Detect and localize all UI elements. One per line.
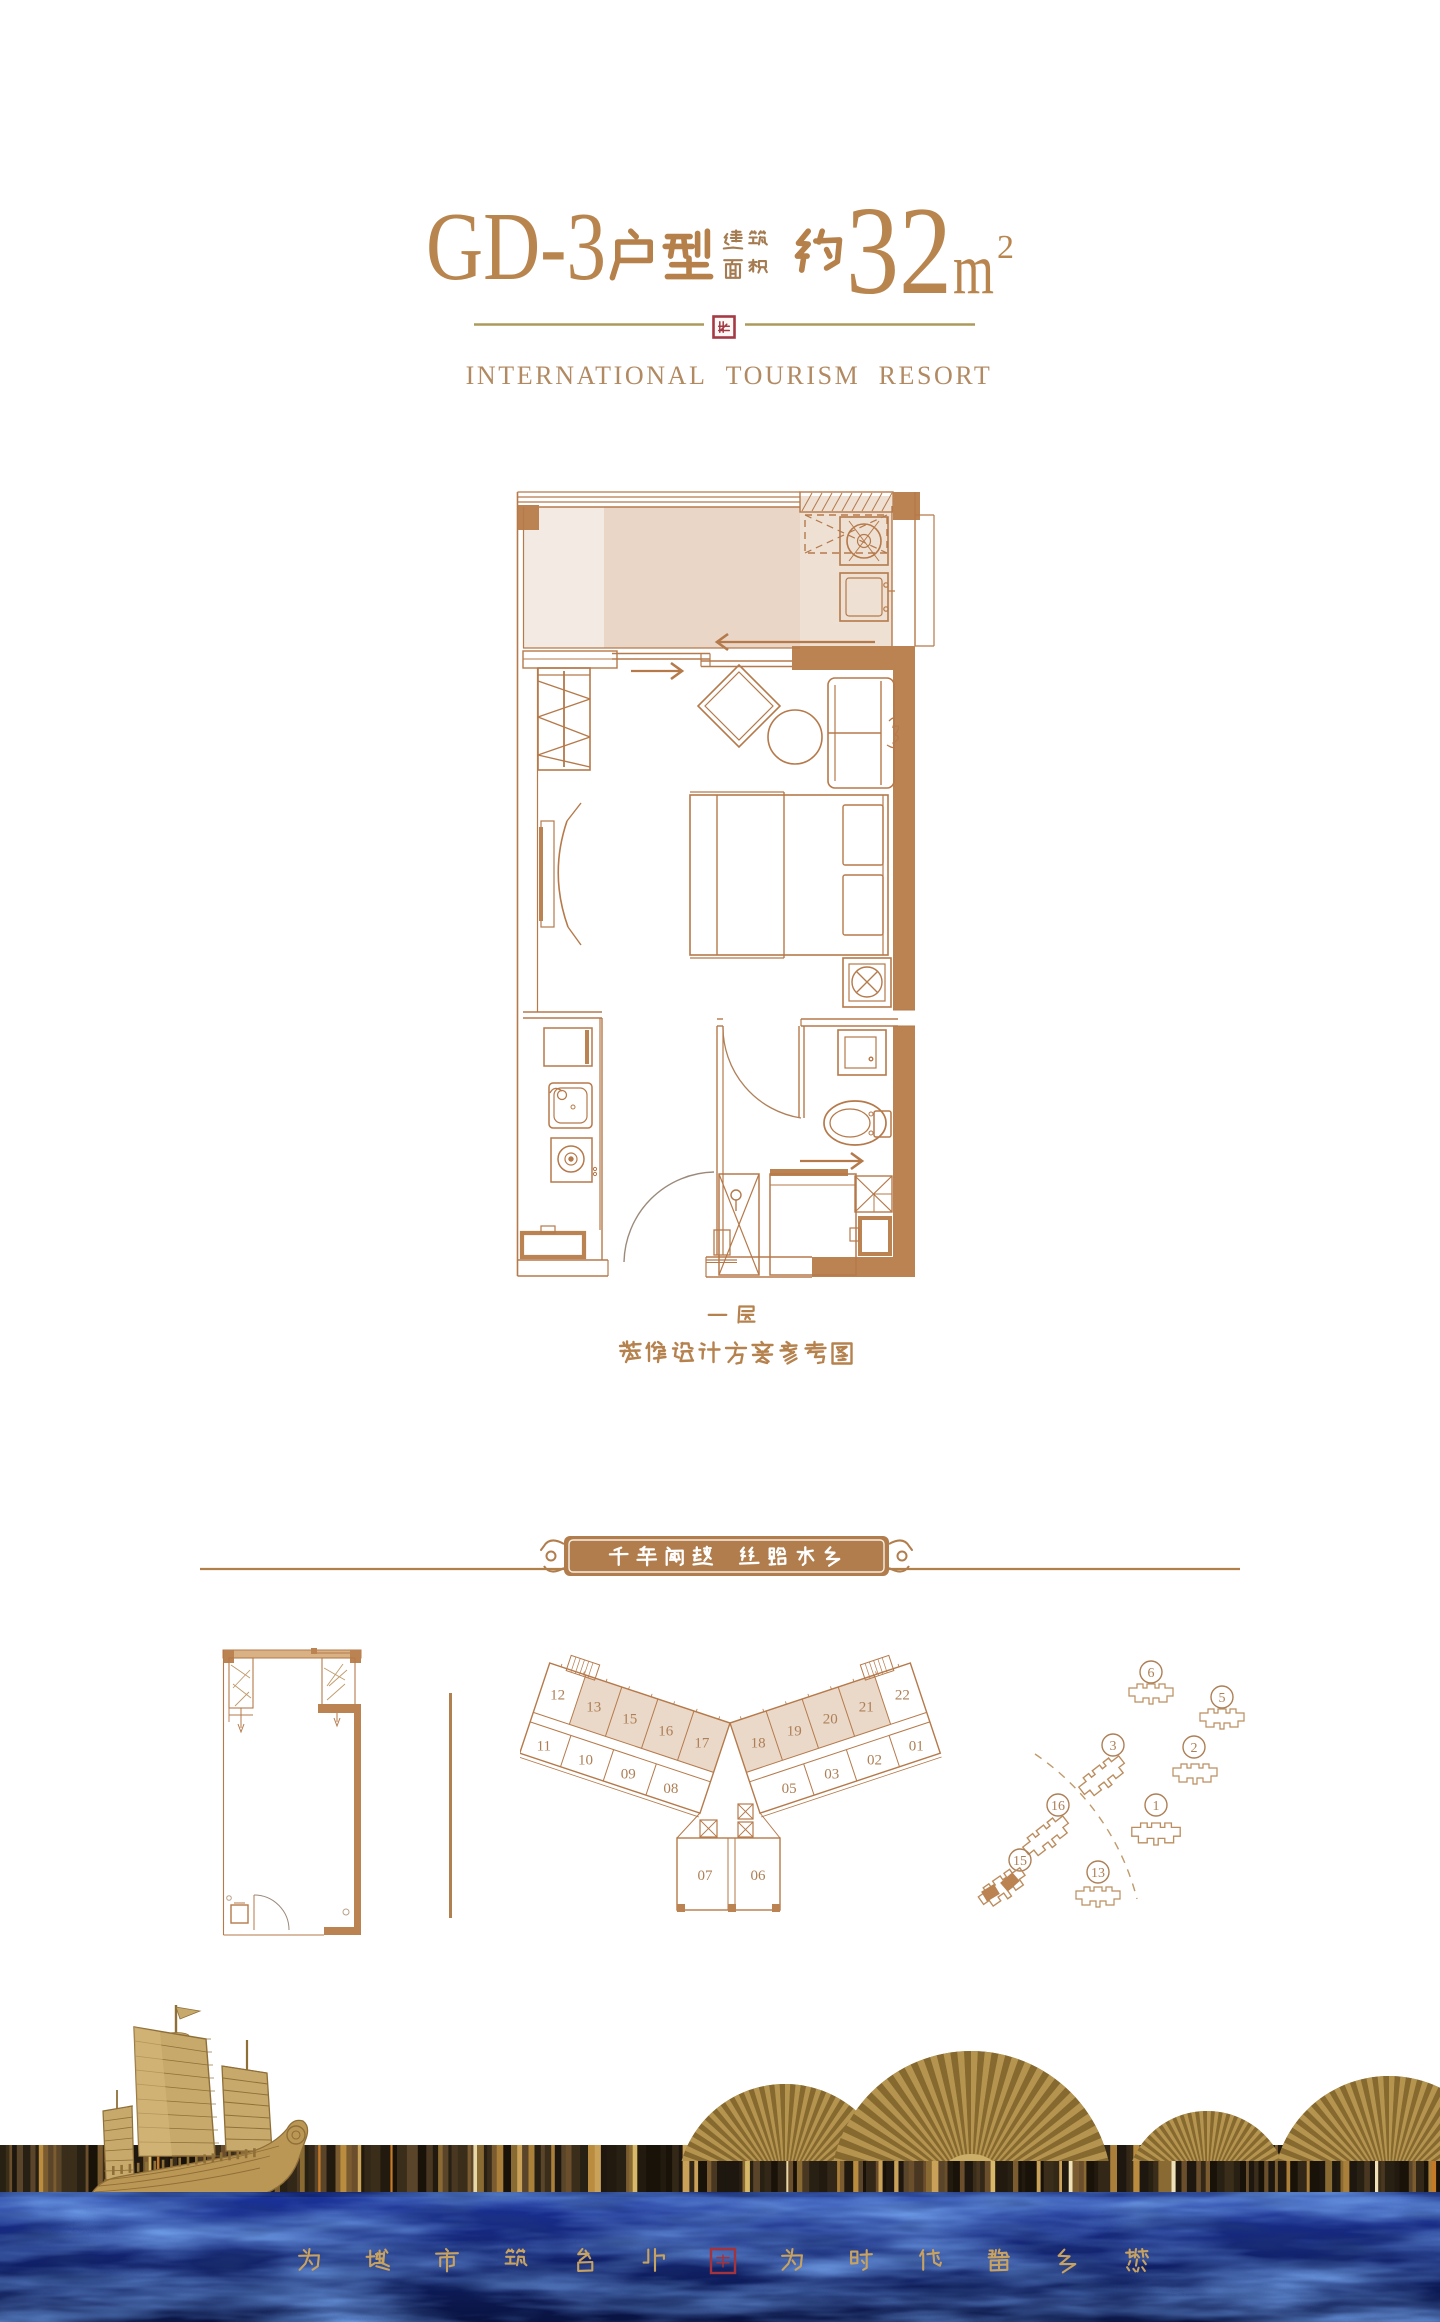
- svg-text:m: m: [953, 229, 994, 309]
- svg-text:3: 3: [1110, 1739, 1117, 1754]
- svg-text:13: 13: [1091, 1866, 1105, 1881]
- svg-text:5: 5: [1219, 1691, 1226, 1706]
- svg-text:16: 16: [1051, 1799, 1065, 1814]
- svg-text:18: 18: [751, 1735, 766, 1751]
- svg-text:20: 20: [823, 1711, 838, 1727]
- svg-text:16: 16: [658, 1723, 674, 1739]
- svg-text:12: 12: [550, 1687, 565, 1703]
- svg-text:21: 21: [859, 1699, 874, 1715]
- svg-text:2: 2: [997, 229, 1014, 266]
- svg-text:15: 15: [1013, 1854, 1027, 1869]
- svg-text:09: 09: [621, 1767, 636, 1783]
- svg-text:32: 32: [846, 190, 952, 310]
- svg-text:01: 01: [909, 1739, 924, 1755]
- svg-text:11: 11: [537, 1739, 551, 1755]
- svg-text:19: 19: [787, 1723, 802, 1739]
- svg-text:08: 08: [663, 1781, 678, 1797]
- svg-text:1: 1: [1153, 1799, 1160, 1814]
- svg-text:10: 10: [578, 1753, 593, 1769]
- svg-text:03: 03: [824, 1767, 839, 1783]
- svg-text:GD-3: GD-3: [426, 193, 606, 300]
- svg-text:05: 05: [782, 1781, 797, 1797]
- svg-text:13: 13: [586, 1699, 601, 1715]
- svg-text:17: 17: [694, 1735, 710, 1751]
- svg-text:2: 2: [1191, 1741, 1198, 1756]
- svg-text:15: 15: [622, 1711, 637, 1727]
- svg-text:02: 02: [867, 1753, 882, 1769]
- svg-text:06: 06: [751, 1868, 767, 1884]
- svg-text:6: 6: [1148, 1666, 1155, 1681]
- svg-text:07: 07: [698, 1868, 714, 1884]
- svg-text:22: 22: [895, 1687, 910, 1703]
